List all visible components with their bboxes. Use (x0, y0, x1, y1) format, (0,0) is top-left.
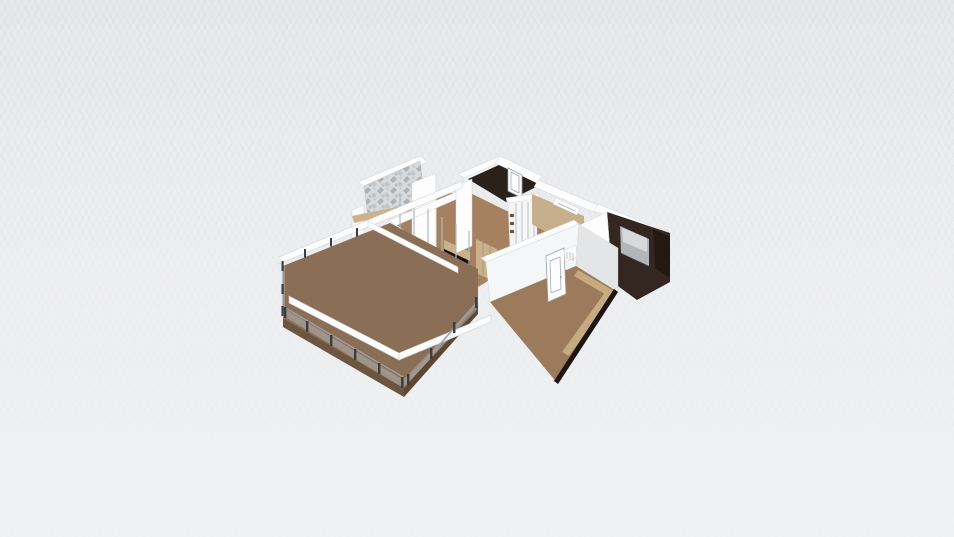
railing-post (407, 374, 409, 385)
interior-door (546, 248, 566, 302)
railing-post (475, 297, 477, 308)
railing-post (356, 228, 358, 237)
railing-post (282, 306, 284, 316)
shelf-item (510, 222, 514, 225)
railing-post (330, 238, 332, 247)
railing-post (304, 249, 306, 258)
shelf-item (510, 214, 514, 217)
floorplan-3d-render (0, 0, 954, 537)
railing-post (401, 377, 403, 388)
railing-post (430, 348, 432, 359)
railing-post (282, 261, 284, 271)
living-room (0, 0, 560, 287)
railing-post (306, 321, 308, 332)
railing-post (378, 363, 380, 374)
door-knob (560, 276, 562, 278)
railing-post (284, 307, 286, 318)
shelf-item (510, 230, 514, 233)
floorplan-canvas[interactable] (0, 0, 954, 537)
railing-post (330, 335, 332, 346)
railing-post (282, 284, 284, 294)
railing-post (453, 322, 455, 333)
railing-post (354, 349, 356, 360)
